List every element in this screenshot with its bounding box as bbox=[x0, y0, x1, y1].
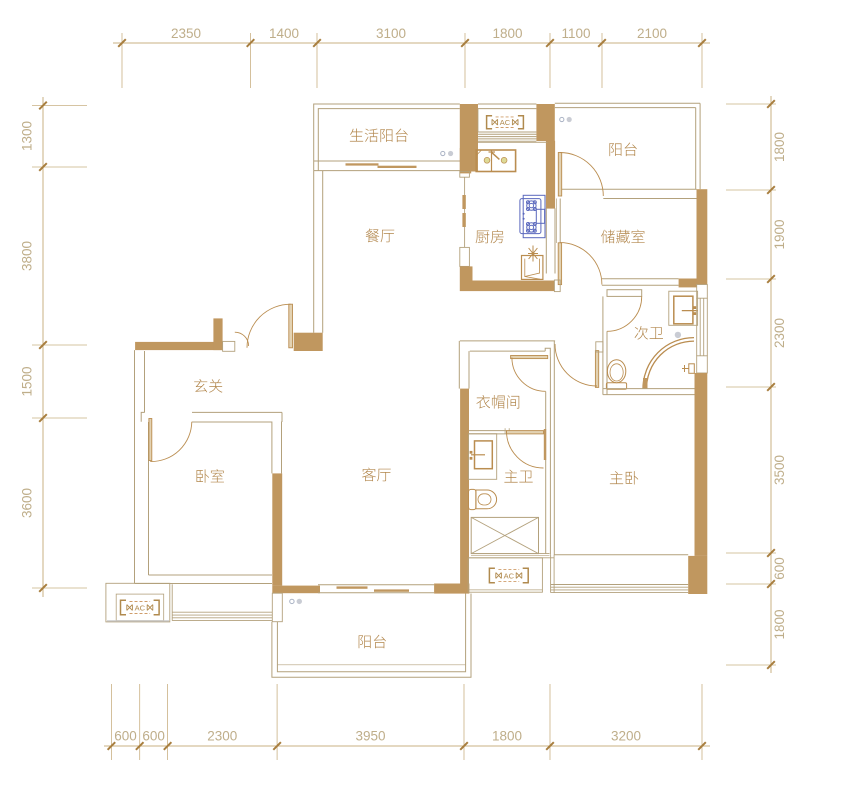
svg-text:2350: 2350 bbox=[171, 26, 201, 41]
svg-text:AC: AC bbox=[135, 603, 146, 612]
svg-text:600: 600 bbox=[142, 729, 165, 744]
svg-text:3950: 3950 bbox=[355, 729, 385, 744]
svg-text:2300: 2300 bbox=[207, 729, 237, 744]
svg-text:1400: 1400 bbox=[269, 26, 299, 41]
svg-text:1500: 1500 bbox=[20, 366, 35, 396]
svg-text:3500: 3500 bbox=[772, 455, 787, 485]
svg-text:3100: 3100 bbox=[376, 26, 406, 41]
svg-text:2100: 2100 bbox=[637, 26, 667, 41]
svg-text:600: 600 bbox=[772, 557, 787, 580]
svg-text:3600: 3600 bbox=[20, 488, 35, 518]
svg-text:1800: 1800 bbox=[492, 26, 522, 41]
svg-text:AC: AC bbox=[500, 118, 511, 127]
svg-text:3200: 3200 bbox=[611, 729, 641, 744]
svg-text:600: 600 bbox=[114, 729, 137, 744]
svg-text:AC: AC bbox=[504, 571, 515, 580]
svg-text:1800: 1800 bbox=[492, 729, 522, 744]
svg-text:1800: 1800 bbox=[772, 609, 787, 639]
svg-text:1100: 1100 bbox=[561, 26, 590, 41]
svg-text:2300: 2300 bbox=[772, 318, 787, 348]
svg-text:1300: 1300 bbox=[20, 121, 35, 151]
svg-text:3800: 3800 bbox=[20, 241, 35, 271]
svg-text:1800: 1800 bbox=[772, 132, 787, 162]
svg-text:1900: 1900 bbox=[772, 219, 787, 249]
